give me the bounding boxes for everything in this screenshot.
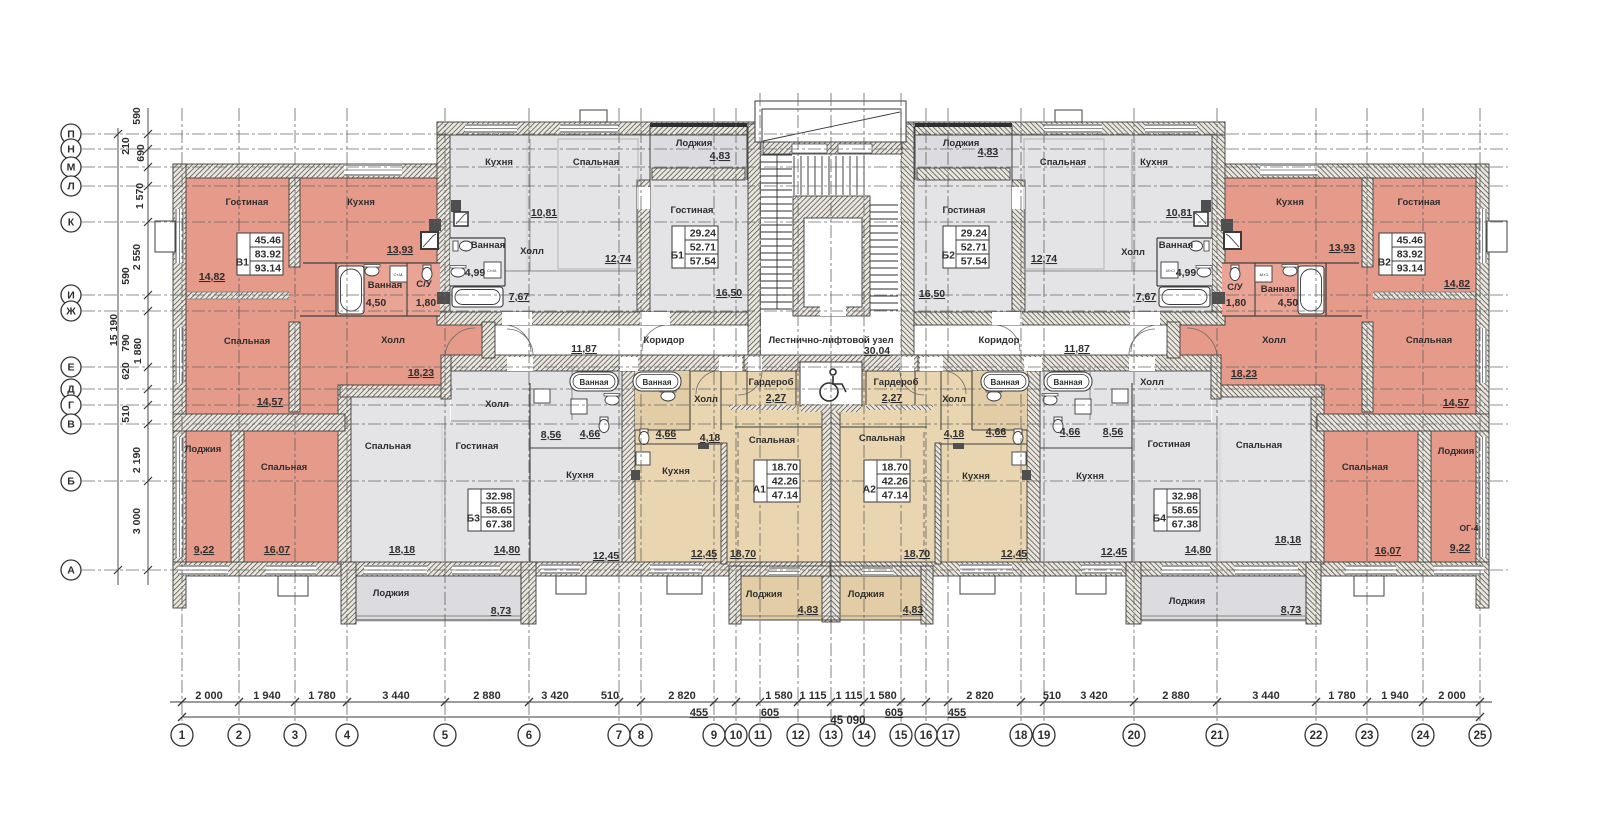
svg-text:Ванная: Ванная bbox=[368, 280, 402, 291]
svg-text:3 000: 3 000 bbox=[131, 508, 143, 534]
svg-text:790: 790 bbox=[120, 334, 132, 352]
svg-text:52.71: 52.71 bbox=[961, 242, 987, 254]
svg-text:58.65: 58.65 bbox=[1172, 505, 1198, 517]
svg-text:620: 620 bbox=[120, 362, 132, 380]
svg-text:12: 12 bbox=[792, 730, 805, 742]
svg-text:12,45: 12,45 bbox=[593, 550, 619, 562]
svg-text:12,74: 12,74 bbox=[1031, 253, 1057, 265]
svg-text:10,81: 10,81 bbox=[1166, 207, 1192, 219]
svg-text:510: 510 bbox=[120, 405, 132, 423]
svg-text:4,99: 4,99 bbox=[1176, 267, 1197, 279]
svg-text:Лоджия: Лоджия bbox=[1169, 596, 1206, 607]
svg-text:13,93: 13,93 bbox=[1329, 242, 1355, 254]
svg-text:3 440: 3 440 bbox=[382, 690, 410, 702]
svg-text:ОГ-4: ОГ-4 bbox=[1460, 523, 1479, 533]
svg-text:12,74: 12,74 bbox=[605, 253, 631, 265]
svg-text:Спальная: Спальная bbox=[749, 435, 795, 446]
svg-text:Ванная: Ванная bbox=[1159, 240, 1193, 251]
svg-text:Кухня: Кухня bbox=[962, 471, 990, 482]
svg-text:4: 4 bbox=[344, 730, 351, 742]
svg-text:Кухня: Кухня bbox=[1076, 471, 1104, 482]
svg-text:47.14: 47.14 bbox=[882, 490, 908, 502]
svg-text:Ванная: Ванная bbox=[1261, 284, 1295, 295]
svg-text:14,80: 14,80 bbox=[494, 544, 520, 556]
svg-text:Кухня: Кухня bbox=[662, 466, 690, 477]
svg-text:605: 605 bbox=[885, 707, 903, 719]
svg-text:1 580: 1 580 bbox=[765, 690, 793, 702]
svg-text:Гостиная: Гостиная bbox=[1148, 439, 1191, 450]
svg-text:19: 19 bbox=[1038, 730, 1051, 742]
svg-text:4,50: 4,50 bbox=[366, 297, 387, 309]
svg-text:Гостиная: Гостиная bbox=[456, 441, 499, 452]
svg-text:9,22: 9,22 bbox=[194, 544, 215, 556]
svg-text:455: 455 bbox=[948, 707, 966, 719]
svg-text:Лоджия: Лоджия bbox=[848, 589, 885, 600]
svg-text:510: 510 bbox=[601, 690, 619, 702]
svg-text:6: 6 bbox=[526, 730, 532, 742]
svg-text:590: 590 bbox=[131, 107, 143, 125]
svg-text:2 550: 2 550 bbox=[131, 244, 143, 270]
svg-text:Лоджия: Лоджия bbox=[1438, 446, 1475, 457]
svg-text:Лоджия: Лоджия bbox=[943, 138, 980, 149]
svg-text:А2: А2 bbox=[863, 484, 877, 496]
svg-text:20: 20 bbox=[1128, 730, 1141, 742]
svg-text:Б2: Б2 bbox=[942, 250, 956, 262]
svg-text:2,27: 2,27 bbox=[882, 392, 903, 404]
svg-text:Спальная: Спальная bbox=[365, 441, 411, 452]
svg-text:Б3: Б3 bbox=[467, 513, 481, 525]
svg-text:3 440: 3 440 bbox=[1252, 690, 1280, 702]
svg-text:11,87: 11,87 bbox=[1064, 343, 1090, 355]
svg-text:4,18: 4,18 bbox=[700, 432, 721, 444]
svg-text:2,27: 2,27 bbox=[766, 392, 787, 404]
svg-text:16: 16 bbox=[920, 730, 933, 742]
svg-text:Лоджия: Лоджия bbox=[676, 138, 713, 149]
svg-text:Кухня: Кухня bbox=[347, 197, 375, 208]
svg-text:Н: Н bbox=[67, 144, 75, 156]
svg-text:67.38: 67.38 bbox=[1172, 519, 1198, 531]
svg-text:А1: А1 bbox=[753, 484, 767, 496]
svg-text:16,50: 16,50 bbox=[716, 287, 742, 299]
svg-text:1 115: 1 115 bbox=[800, 690, 827, 702]
svg-text:32.98: 32.98 bbox=[1172, 491, 1198, 503]
svg-text:18,23: 18,23 bbox=[1231, 368, 1257, 380]
svg-text:18.70: 18.70 bbox=[882, 462, 908, 474]
svg-text:5: 5 bbox=[442, 730, 449, 742]
svg-text:1 780: 1 780 bbox=[308, 690, 336, 702]
svg-text:Гостиная: Гостиная bbox=[943, 205, 986, 216]
svg-text:25: 25 bbox=[1474, 730, 1487, 742]
svg-text:2 880: 2 880 bbox=[473, 690, 501, 702]
svg-text:Спальная: Спальная bbox=[261, 462, 307, 473]
svg-text:32.98: 32.98 bbox=[486, 491, 512, 503]
svg-text:Кухня: Кухня bbox=[1140, 157, 1168, 168]
svg-text:Холл: Холл bbox=[694, 394, 718, 405]
svg-text:14,57: 14,57 bbox=[257, 396, 283, 408]
svg-text:3 420: 3 420 bbox=[541, 690, 569, 702]
svg-text:14,57: 14,57 bbox=[1443, 397, 1469, 409]
svg-text:4,66: 4,66 bbox=[580, 428, 601, 440]
svg-text:58.65: 58.65 bbox=[486, 505, 512, 517]
svg-text:42.26: 42.26 bbox=[772, 476, 798, 488]
svg-text:7: 7 bbox=[616, 730, 622, 742]
svg-text:Холл: Холл bbox=[1262, 335, 1286, 346]
svg-text:12,45: 12,45 bbox=[691, 548, 717, 560]
svg-text:45.46: 45.46 bbox=[255, 235, 281, 247]
svg-text:К: К bbox=[68, 217, 75, 229]
svg-text:4,83: 4,83 bbox=[978, 146, 999, 158]
svg-text:24: 24 bbox=[1417, 730, 1430, 742]
svg-text:Г: Г bbox=[68, 400, 74, 412]
svg-text:Ванная: Ванная bbox=[990, 378, 1019, 387]
svg-text:12,45: 12,45 bbox=[1001, 548, 1027, 560]
svg-text:14,82: 14,82 bbox=[1444, 278, 1470, 290]
svg-text:22: 22 bbox=[1310, 730, 1323, 742]
svg-text:Кухня: Кухня bbox=[566, 470, 594, 481]
svg-text:Б1: Б1 bbox=[671, 250, 685, 262]
svg-text:29.24: 29.24 bbox=[961, 228, 987, 240]
svg-text:42.26: 42.26 bbox=[882, 476, 908, 488]
svg-text:Ванная: Ванная bbox=[1053, 378, 1082, 387]
svg-text:18,70: 18,70 bbox=[904, 548, 930, 560]
svg-text:Спальная: Спальная bbox=[224, 336, 270, 347]
svg-text:1 780: 1 780 bbox=[1328, 690, 1356, 702]
svg-text:1 570: 1 570 bbox=[134, 183, 146, 209]
svg-text:Лоджия: Лоджия bbox=[185, 444, 222, 455]
svg-text:18: 18 bbox=[1015, 730, 1028, 742]
svg-text:1 880: 1 880 bbox=[132, 338, 144, 364]
svg-text:15 190: 15 190 bbox=[108, 314, 120, 346]
svg-text:7,67: 7,67 bbox=[1136, 291, 1157, 303]
svg-text:12,45: 12,45 bbox=[1101, 546, 1127, 558]
svg-text:1 115: 1 115 bbox=[836, 690, 863, 702]
svg-text:57.54: 57.54 bbox=[690, 256, 716, 268]
svg-text:Спальная: Спальная bbox=[859, 433, 905, 444]
svg-text:А: А bbox=[67, 565, 75, 577]
svg-text:Холл: Холл bbox=[942, 394, 966, 405]
svg-text:8,73: 8,73 bbox=[491, 605, 512, 617]
svg-text:Ванная: Ванная bbox=[642, 378, 671, 387]
svg-text:93.14: 93.14 bbox=[255, 263, 281, 275]
svg-text:Кухня: Кухня bbox=[485, 157, 513, 168]
svg-text:45.46: 45.46 bbox=[1397, 235, 1423, 247]
svg-text:17: 17 bbox=[942, 730, 955, 742]
svg-text:1 940: 1 940 bbox=[1381, 690, 1409, 702]
svg-text:16,07: 16,07 bbox=[1375, 545, 1401, 557]
svg-text:Спальная: Спальная bbox=[573, 157, 619, 168]
svg-text:В2: В2 bbox=[1378, 257, 1392, 269]
svg-text:18,18: 18,18 bbox=[389, 544, 415, 556]
svg-text:Ст.М.: Ст.М. bbox=[487, 268, 497, 273]
svg-text:14: 14 bbox=[858, 730, 871, 742]
svg-text:16,50: 16,50 bbox=[919, 288, 945, 300]
svg-text:Холл: Холл bbox=[381, 335, 405, 346]
svg-text:Лоджия: Лоджия bbox=[746, 589, 783, 600]
svg-text:4,83: 4,83 bbox=[710, 150, 731, 162]
svg-text:18,18: 18,18 bbox=[1275, 534, 1301, 546]
svg-text:8,56: 8,56 bbox=[1103, 426, 1124, 438]
svg-text:4,50: 4,50 bbox=[1278, 297, 1299, 309]
svg-text:4,66: 4,66 bbox=[1060, 426, 1081, 438]
svg-text:18,23: 18,23 bbox=[408, 367, 434, 379]
svg-text:18.70: 18.70 bbox=[772, 462, 798, 474]
svg-text:9,22: 9,22 bbox=[1450, 542, 1471, 554]
svg-text:2 820: 2 820 bbox=[966, 690, 994, 702]
svg-text:Ванная: Ванная bbox=[579, 378, 608, 387]
svg-text:Спальная: Спальная bbox=[1342, 462, 1388, 473]
svg-text:83.92: 83.92 bbox=[1397, 249, 1423, 261]
svg-text:Коридор: Коридор bbox=[979, 335, 1020, 346]
svg-text:И: И bbox=[67, 290, 75, 302]
svg-text:4,66: 4,66 bbox=[986, 426, 1007, 438]
svg-text:Д: Д bbox=[67, 384, 75, 396]
svg-text:16,07: 16,07 bbox=[264, 544, 290, 556]
svg-text:23: 23 bbox=[1361, 730, 1374, 742]
svg-text:1 940: 1 940 bbox=[253, 690, 281, 702]
svg-text:Спальная: Спальная bbox=[1040, 157, 1086, 168]
svg-text:Лоджия: Лоджия bbox=[373, 588, 410, 599]
svg-text:4,18: 4,18 bbox=[944, 428, 965, 440]
svg-text:47.14: 47.14 bbox=[772, 490, 798, 502]
svg-text:С/У: С/У bbox=[416, 279, 432, 290]
svg-text:2 880: 2 880 bbox=[1162, 690, 1190, 702]
svg-text:2: 2 bbox=[236, 730, 242, 742]
svg-text:10,81: 10,81 bbox=[531, 207, 557, 219]
svg-text:3 420: 3 420 bbox=[1080, 690, 1108, 702]
svg-text:Спальная: Спальная bbox=[1236, 440, 1282, 451]
svg-text:Е: Е bbox=[67, 362, 74, 374]
svg-text:590: 590 bbox=[120, 267, 132, 285]
svg-text:690: 690 bbox=[135, 144, 147, 162]
svg-text:Гардероб: Гардероб bbox=[749, 377, 794, 388]
svg-text:Гостиная: Гостиная bbox=[226, 197, 269, 208]
svg-text:4,99: 4,99 bbox=[465, 267, 486, 279]
svg-text:15: 15 bbox=[895, 730, 908, 742]
svg-text:Гостиная: Гостиная bbox=[671, 205, 714, 216]
svg-text:11,87: 11,87 bbox=[571, 343, 597, 355]
svg-text:Ст.М.: Ст.М. bbox=[394, 272, 404, 277]
svg-text:2 820: 2 820 bbox=[668, 690, 696, 702]
svg-text:30,04: 30,04 bbox=[864, 345, 890, 357]
svg-text:Гардероб: Гардероб bbox=[874, 377, 919, 388]
svg-text:С/У: С/У bbox=[1227, 282, 1243, 293]
svg-text:М: М bbox=[67, 162, 76, 174]
svg-text:Холл: Холл bbox=[520, 246, 544, 257]
svg-text:8,56: 8,56 bbox=[541, 429, 562, 441]
svg-text:В1: В1 bbox=[236, 257, 250, 269]
svg-text:21: 21 bbox=[1211, 730, 1224, 742]
svg-text:67.38: 67.38 bbox=[486, 519, 512, 531]
svg-text:14,82: 14,82 bbox=[199, 271, 225, 283]
svg-text:9: 9 bbox=[711, 730, 717, 742]
svg-text:57.54: 57.54 bbox=[961, 256, 987, 268]
svg-text:7,67: 7,67 bbox=[509, 291, 530, 303]
svg-text:Б4: Б4 bbox=[1153, 513, 1167, 525]
svg-text:45 090: 45 090 bbox=[830, 715, 865, 727]
svg-text:Коридор: Коридор bbox=[644, 335, 685, 346]
svg-text:1 580: 1 580 bbox=[869, 690, 897, 702]
svg-text:510: 510 bbox=[1043, 690, 1061, 702]
svg-text:Спальная: Спальная bbox=[1406, 335, 1452, 346]
svg-text:11: 11 bbox=[754, 730, 767, 742]
svg-text:29.24: 29.24 bbox=[690, 228, 716, 240]
svg-text:455: 455 bbox=[690, 707, 708, 719]
svg-text:52.71: 52.71 bbox=[690, 242, 716, 254]
svg-text:4,83: 4,83 bbox=[903, 604, 924, 616]
svg-text:Ж: Ж bbox=[65, 306, 76, 318]
svg-text:2 190: 2 190 bbox=[131, 447, 143, 473]
svg-text:Холл: Холл bbox=[1121, 247, 1145, 258]
svg-text:13,93: 13,93 bbox=[387, 244, 413, 256]
svg-text:Холл: Холл bbox=[1140, 377, 1164, 388]
svg-text:Л: Л bbox=[67, 181, 74, 193]
svg-text:93.14: 93.14 bbox=[1397, 263, 1423, 275]
svg-text:10: 10 bbox=[730, 730, 743, 742]
svg-text:Гостиная: Гостиная bbox=[1398, 197, 1441, 208]
svg-text:4,66: 4,66 bbox=[656, 428, 677, 440]
svg-text:В: В bbox=[67, 419, 75, 431]
svg-text:8,73: 8,73 bbox=[1281, 604, 1302, 616]
svg-text:Ванная: Ванная bbox=[471, 240, 505, 251]
svg-text:4,83: 4,83 bbox=[798, 604, 819, 616]
svg-text:2 000: 2 000 bbox=[195, 690, 223, 702]
svg-text:18,70: 18,70 bbox=[730, 548, 756, 560]
svg-text:2 000: 2 000 bbox=[1438, 690, 1466, 702]
svg-text:3: 3 bbox=[292, 730, 298, 742]
svg-text:210: 210 bbox=[120, 137, 132, 155]
svg-text:Б: Б bbox=[67, 476, 75, 488]
svg-text:1,80: 1,80 bbox=[416, 297, 437, 309]
svg-text:1: 1 bbox=[179, 730, 186, 742]
svg-text:14,80: 14,80 bbox=[1185, 544, 1211, 556]
svg-text:Холл: Холл bbox=[485, 399, 509, 410]
svg-text:8: 8 bbox=[638, 730, 645, 742]
svg-text:1,80: 1,80 bbox=[1226, 297, 1247, 309]
svg-text:13: 13 bbox=[825, 730, 838, 742]
svg-text:83.92: 83.92 bbox=[255, 249, 281, 261]
svg-text:605: 605 bbox=[761, 707, 779, 719]
svg-text:Кухня: Кухня bbox=[1276, 197, 1304, 208]
